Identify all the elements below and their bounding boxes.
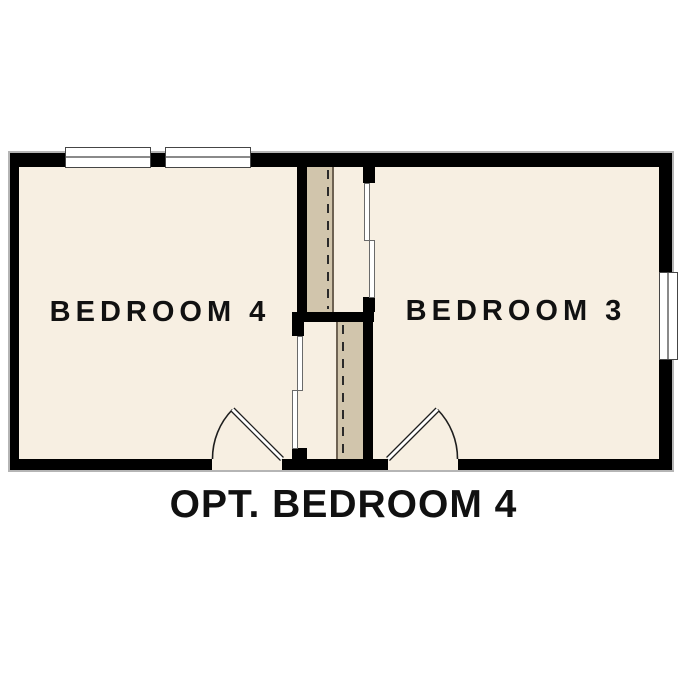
door-jamb-stub — [363, 297, 375, 312]
closet-wall-west — [297, 167, 307, 313]
exterior-wall-bottom-left — [10, 459, 212, 470]
window-icon — [65, 147, 151, 168]
room-label-bedroom-4: BEDROOM 4 — [36, 298, 284, 327]
bypass-door-panel — [292, 390, 298, 449]
floor-plan: BEDROOM 4 BEDROOM 3 OPT. BEDROOM 4 — [0, 0, 687, 687]
window-pane-line — [667, 273, 669, 359]
door-jamb-stub — [292, 322, 304, 336]
exterior-wall-left — [10, 153, 19, 470]
exterior-wall-bottom-center — [282, 459, 388, 470]
window-icon — [165, 147, 251, 168]
window-pane-line — [66, 156, 150, 158]
closet-wall-middle — [292, 312, 374, 322]
door-jamb-stub — [292, 448, 307, 459]
window-icon — [659, 272, 678, 360]
bypass-door-panel — [297, 336, 303, 391]
closet-shelf — [307, 167, 334, 312]
room-label-bedroom-3: BEDROOM 3 — [392, 297, 640, 326]
bypass-door-panel — [369, 240, 375, 298]
window-pane-line — [166, 156, 250, 158]
closet-shelf — [336, 322, 364, 459]
exterior-wall-bottom-right — [458, 459, 672, 470]
closet-rod-line — [342, 325, 344, 456]
closet-wall-east — [363, 322, 373, 459]
bypass-door-panel — [364, 183, 370, 241]
plan-caption: OPT. BEDROOM 4 — [0, 485, 687, 524]
closet-rod-line — [327, 170, 329, 309]
door-jamb-stub — [363, 167, 375, 183]
